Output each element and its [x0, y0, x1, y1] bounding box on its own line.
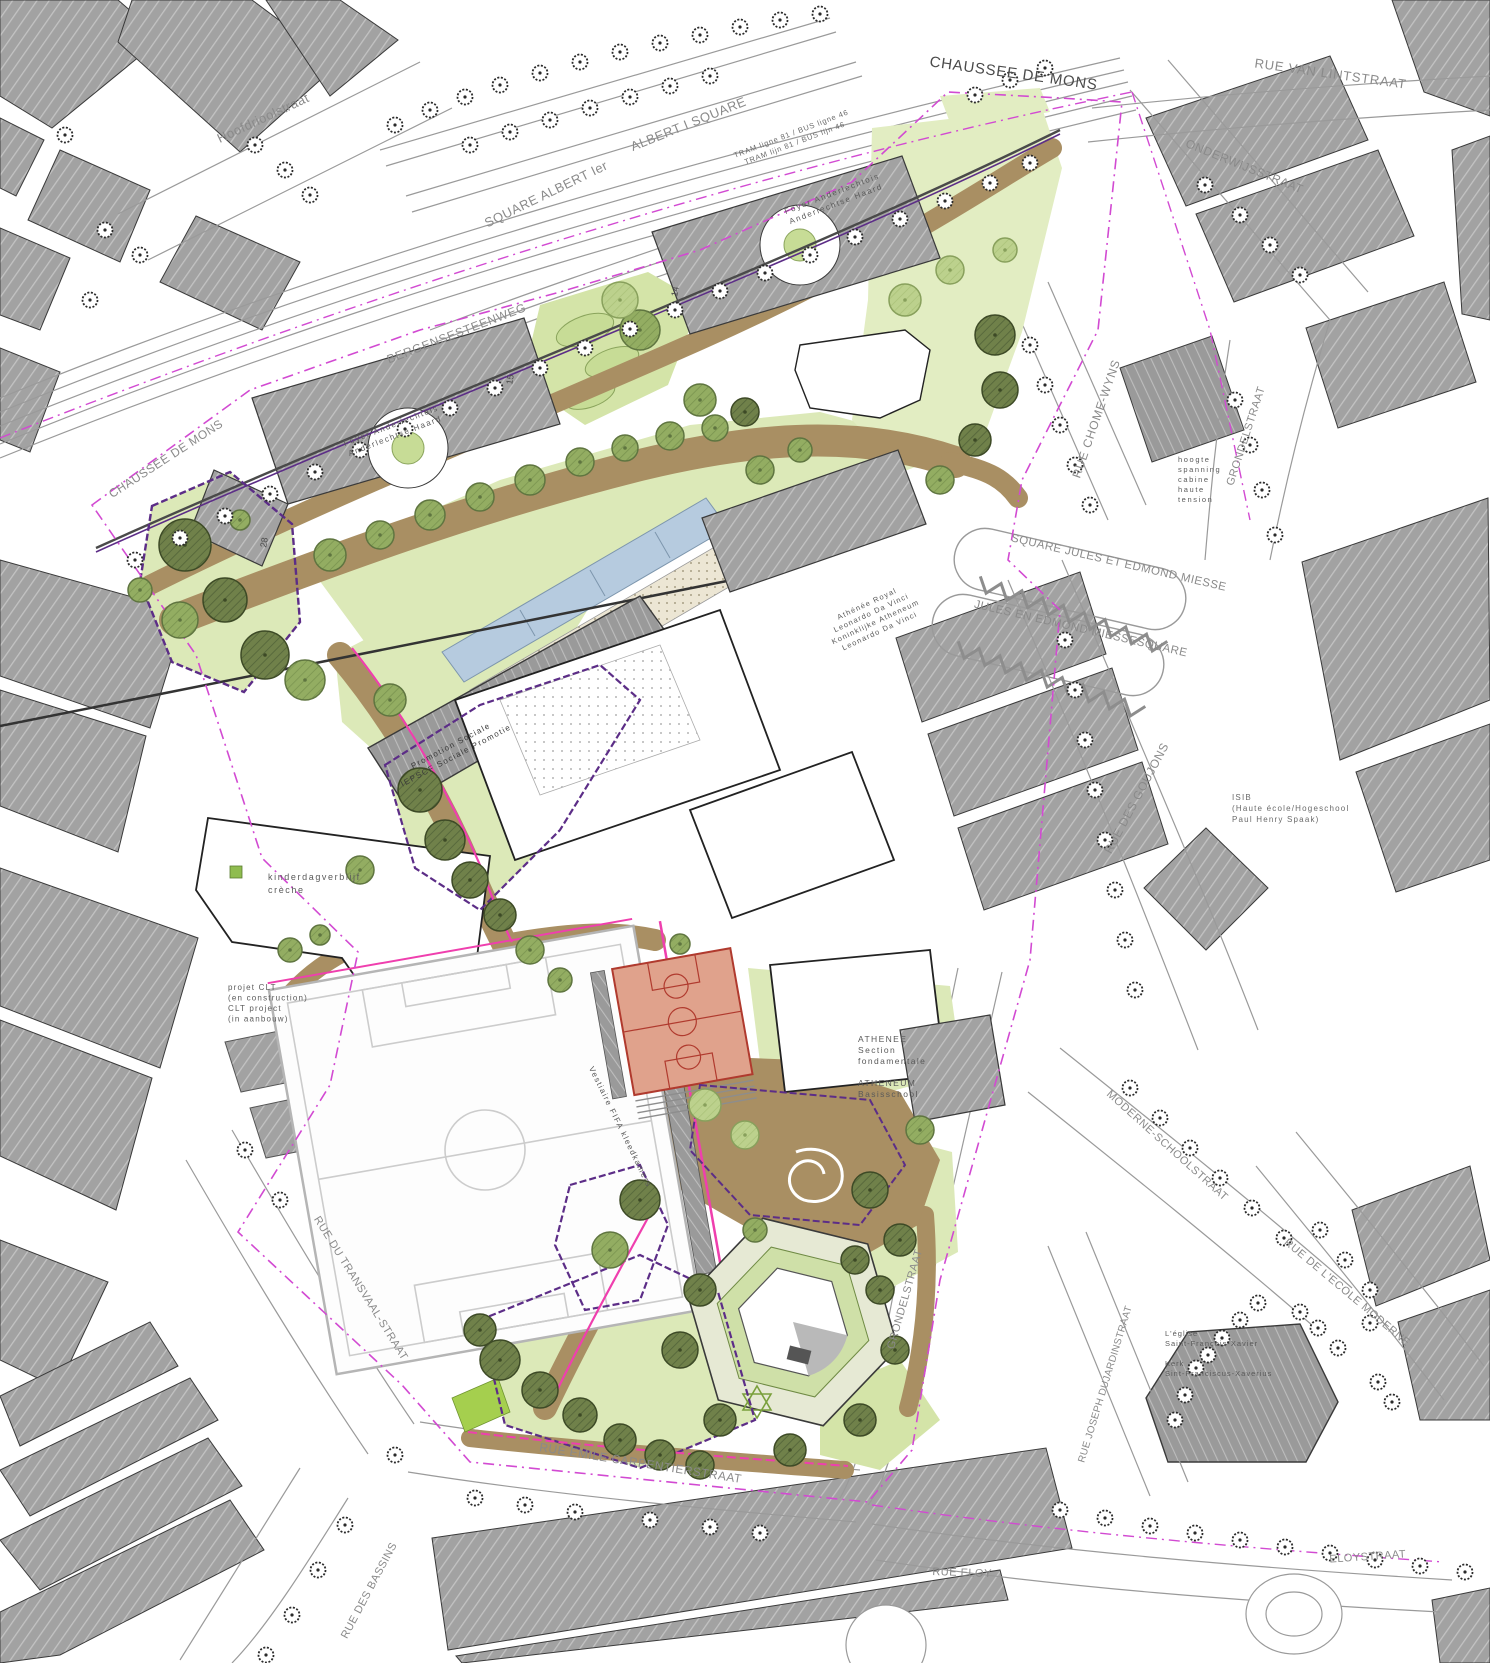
park-tree [689, 1089, 721, 1121]
street-tree [259, 1648, 274, 1663]
street-tree [1233, 1533, 1248, 1548]
park-tree [366, 521, 394, 549]
park-tree [731, 1121, 759, 1149]
street-tree [533, 361, 548, 376]
street-tree [423, 103, 438, 118]
park-tree [844, 1404, 876, 1436]
park-tree [743, 1218, 767, 1242]
street-tree [1458, 1565, 1473, 1580]
street-tree [1413, 1559, 1428, 1574]
street-tree [248, 138, 263, 153]
street-tree [273, 1193, 288, 1208]
street-tree [1023, 338, 1038, 353]
street-tree [443, 401, 458, 416]
park-tree [620, 1180, 660, 1220]
street-tree [1083, 498, 1098, 513]
street-tree [703, 1520, 718, 1535]
street-tree [1251, 1296, 1266, 1311]
park-tree [522, 1372, 558, 1408]
street-tree [218, 509, 233, 524]
street-tree [1293, 268, 1308, 283]
street-tree [1053, 418, 1068, 433]
park-tree [841, 1246, 869, 1274]
park-tree [285, 660, 325, 700]
street-tree [503, 125, 518, 140]
park-tree [159, 519, 211, 571]
street-tree [338, 1518, 353, 1533]
street-tree [1233, 1313, 1248, 1328]
street-tree [1363, 1283, 1378, 1298]
street-tree [543, 113, 558, 128]
park-tree [731, 398, 759, 426]
street-tree [1118, 933, 1133, 948]
park-tree [612, 435, 638, 461]
street-tree [463, 138, 478, 153]
street-tree [1178, 1388, 1193, 1403]
street-tree [803, 248, 818, 263]
park-tree [480, 1340, 520, 1380]
street-tree [703, 69, 718, 84]
park-tree [959, 424, 991, 456]
park-tree [310, 925, 330, 945]
park-tree [884, 1224, 916, 1256]
site-plan-map: CHAUSSEE DE MONSRUE VAN LINTSTRAATHoofdr… [0, 0, 1490, 1663]
street-tree [285, 1608, 300, 1623]
street-tree [1123, 1081, 1138, 1096]
street-tree [578, 341, 593, 356]
street-tree [1228, 393, 1243, 408]
park-tree [993, 238, 1017, 262]
street-tree [1313, 1223, 1328, 1238]
park-tree [162, 602, 198, 638]
park-tree [702, 415, 728, 441]
street-tree [613, 45, 628, 60]
park-tree [548, 968, 572, 992]
street-tree [1201, 1348, 1216, 1363]
street-tree [733, 20, 748, 35]
park-tree [592, 1232, 628, 1268]
park-tree [936, 256, 964, 284]
street-tree [1108, 883, 1123, 898]
street-tree [693, 28, 708, 43]
street-tree [493, 78, 508, 93]
park-tree [975, 315, 1015, 355]
park-tree [278, 938, 302, 962]
street-tree [773, 13, 788, 28]
street-tree [653, 36, 668, 51]
street-tree [1268, 528, 1283, 543]
street-tree [173, 531, 188, 546]
street-tree [533, 66, 548, 81]
street-tree [643, 1513, 658, 1528]
street-tree [488, 381, 503, 396]
park-tree [566, 448, 594, 476]
street-tree [663, 79, 678, 94]
street-tree [1078, 733, 1093, 748]
street-tree [1038, 378, 1053, 393]
building-number-15-label: 15 [504, 374, 516, 386]
street-tree [713, 284, 728, 299]
park-tree [662, 1332, 698, 1368]
street-tree [303, 188, 318, 203]
street-tree [893, 212, 908, 227]
street-tree [1188, 1526, 1203, 1541]
street-tree [1311, 1321, 1326, 1336]
park-tree [464, 1314, 496, 1346]
street-tree [583, 101, 598, 116]
street-tree [1053, 1503, 1068, 1518]
street-tree [968, 88, 983, 103]
street-tree [1153, 1111, 1168, 1126]
street-tree [1338, 1253, 1353, 1268]
park-tree [484, 899, 516, 931]
street-tree [1331, 1341, 1346, 1356]
street-tree [753, 1526, 768, 1541]
street-tree [98, 223, 113, 238]
street-tree [1088, 783, 1103, 798]
park-tree [415, 500, 445, 530]
park-tree [515, 465, 545, 495]
park-tree [314, 539, 346, 571]
park-tree [852, 1172, 888, 1208]
park-tree [889, 284, 921, 316]
park-tree [788, 438, 812, 462]
site-plan-page: CHAUSSEE DE MONSRUE VAN LINTSTRAATHoofdr… [0, 0, 1490, 1663]
street-tree [1128, 983, 1143, 998]
street-tree [1143, 1519, 1158, 1534]
park-tree [670, 934, 690, 954]
street-tree [133, 248, 148, 263]
street-tree [668, 303, 683, 318]
park-tree [516, 936, 544, 964]
park-tree [452, 862, 488, 898]
street-tree [263, 487, 278, 502]
street-tree [568, 1505, 583, 1520]
park-tree [425, 820, 465, 860]
park-tree [203, 578, 247, 622]
park-tree [684, 384, 716, 416]
street-tree [278, 163, 293, 178]
street-tree [388, 118, 403, 133]
street-tree [1198, 178, 1213, 193]
street-tree [983, 176, 998, 191]
street-tree [1278, 1540, 1293, 1555]
park-tree [746, 456, 774, 484]
building-number-28-label: 28 [258, 537, 270, 549]
street-tree [1293, 1305, 1308, 1320]
park-tree [866, 1276, 894, 1304]
street-tree [848, 230, 863, 245]
street-tree [58, 128, 73, 143]
street-tree [1371, 1375, 1386, 1390]
street-tree [1098, 1511, 1113, 1526]
street-tree [311, 1563, 326, 1578]
park-tree [926, 466, 954, 494]
street-tree [1255, 483, 1270, 498]
street-tree [518, 1498, 533, 1513]
street-tree [1233, 208, 1248, 223]
street-tree [308, 465, 323, 480]
street-tree [573, 55, 588, 70]
park-tree [128, 578, 152, 602]
park-tree [602, 282, 638, 318]
park-tree [374, 684, 406, 716]
street-tree [1245, 1201, 1260, 1216]
park-tree [466, 483, 494, 511]
street-tree [623, 322, 638, 337]
street-tree [1385, 1395, 1400, 1410]
street-tree [468, 1491, 483, 1506]
park-tree [563, 1398, 597, 1432]
building-number-14-label: 14 [669, 286, 681, 298]
street-tree [388, 1448, 403, 1463]
street-tree [128, 553, 143, 568]
street-tree [458, 90, 473, 105]
street-tree [938, 194, 953, 209]
street-tree [1023, 156, 1038, 171]
street-tree [813, 7, 828, 22]
park-tree [906, 1116, 934, 1144]
street-tree [1168, 1413, 1183, 1428]
street-tree [758, 266, 773, 281]
street-tree [623, 90, 638, 105]
street-tree [238, 1143, 253, 1158]
park-tree [656, 422, 684, 450]
park-tree [230, 510, 250, 530]
street-tree [1068, 683, 1083, 698]
park-tree [704, 1404, 736, 1436]
park-tree [684, 1274, 716, 1306]
street-tree [1263, 238, 1278, 253]
park-tree [774, 1434, 806, 1466]
park-tree [982, 372, 1018, 408]
rue-eloy-label: RUE ELOY [932, 1566, 992, 1580]
park-tree [241, 631, 289, 679]
pavilion-building [795, 330, 930, 418]
street-tree [1058, 633, 1073, 648]
street-tree [83, 293, 98, 308]
